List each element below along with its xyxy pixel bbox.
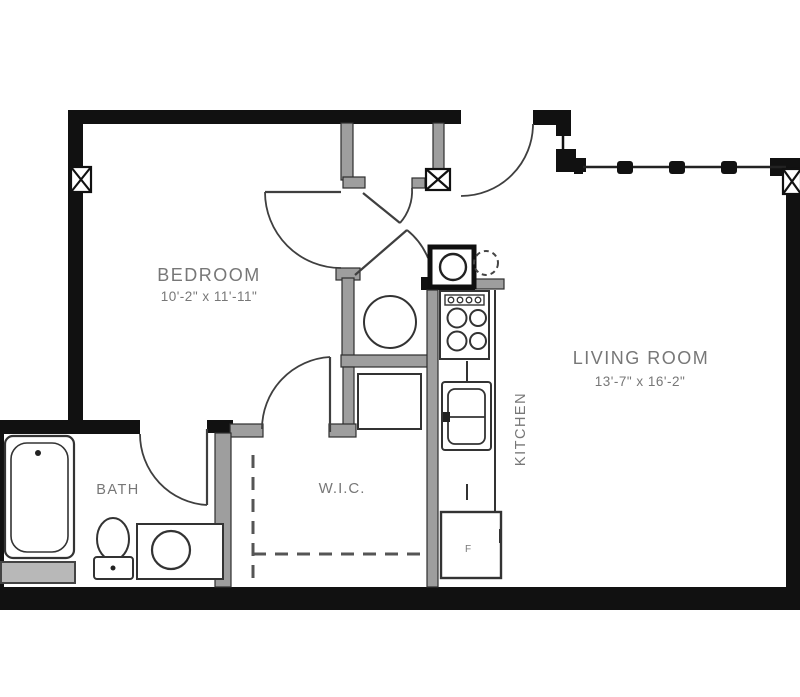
window-mullion (721, 161, 737, 174)
closet-door-upper-arc (400, 188, 412, 223)
bedroom-label: BEDROOM (157, 265, 261, 285)
bath-door (140, 429, 207, 505)
wall-bath-top (0, 420, 140, 434)
exhaust-dashed-circle (474, 251, 498, 275)
wall-left (68, 110, 83, 434)
bath-label: BATH (96, 482, 140, 498)
bath-fixtures (1, 436, 223, 583)
wall-wic-top-left (230, 424, 263, 437)
closet-door-upper-leaf (363, 193, 400, 223)
kitchen-label: KITCHEN (513, 392, 529, 466)
x-box-marker-right (783, 169, 800, 194)
living-room-dimensions: 13'-7" x 16'-2" (595, 374, 686, 389)
wic-door (262, 357, 330, 432)
wic-shelf (358, 374, 421, 429)
wic-door-arc (262, 357, 330, 429)
tub-ledge (1, 562, 75, 583)
bedroom-door-arc (265, 192, 341, 268)
closet-door-lower-arc (407, 230, 428, 258)
stove-knob (475, 297, 481, 303)
window-band (574, 161, 786, 174)
x-box-marker-left (71, 167, 91, 192)
toilet-bowl (97, 518, 129, 560)
toilet-flush-dot (111, 566, 116, 571)
entry-jamb-block (533, 110, 571, 125)
bath-door-arc (140, 434, 207, 505)
wic-label: W.I.C. (319, 480, 366, 497)
doorstop-closet-right (412, 178, 425, 188)
entry-jamb-tab (556, 123, 571, 136)
wic-features (253, 374, 424, 582)
closet-door-lower-leaf (355, 230, 407, 275)
bedroom-dimensions: 10'-2" x 11'-11" (161, 289, 258, 304)
bathtub-drain (35, 450, 41, 456)
refrigerator-letter: F (465, 544, 471, 555)
wall-mech-closet-bottom (341, 355, 434, 367)
kitchen-pass-wall-ext (475, 279, 504, 289)
wall-wic-right-stub (343, 367, 354, 426)
stove-burner (448, 332, 467, 351)
bedroom-door (265, 192, 341, 268)
wall-bottom (0, 587, 790, 610)
wall-wic-top-right (329, 424, 356, 437)
doorstop-bedroom-upper (343, 177, 365, 188)
kitchen-fixtures (440, 290, 501, 578)
x-box-marker-center (426, 169, 450, 190)
living-room-label: LIVING ROOM (573, 348, 710, 368)
entry-door (461, 124, 533, 196)
wall-top (68, 110, 461, 124)
window-mullion (617, 161, 633, 174)
entry-door-arc (461, 124, 533, 196)
closet-door-lower (355, 230, 428, 275)
stove-burner (470, 333, 486, 349)
vanity-basin (152, 531, 190, 569)
wall-markers (71, 167, 800, 194)
wall-kitchen-left (427, 290, 438, 587)
kitchen-faucet (443, 412, 450, 422)
stove-knob (448, 297, 454, 303)
stove-burner (470, 310, 486, 326)
bath-door-cap (207, 420, 233, 433)
window-end-cap (574, 161, 583, 174)
stove-burner (448, 309, 467, 328)
stove-knob (466, 297, 472, 303)
floor-plan-drawing: BEDROOM 10'-2" x 11'-11" LIVING ROOM 13'… (0, 0, 800, 697)
water-heater (364, 296, 416, 348)
wall-closet-right (433, 123, 444, 172)
wall-right (786, 158, 800, 610)
closet-door-upper (363, 188, 412, 223)
floor-plan: BEDROOM 10'-2" x 11'-11" LIVING ROOM 13'… (0, 0, 800, 697)
wall-bedroom-closet-upper (341, 123, 353, 180)
wall-mech-closet-left (342, 278, 354, 366)
window-mullion (669, 161, 685, 174)
bathtub-inner (11, 443, 68, 552)
stove-knob (457, 297, 463, 303)
